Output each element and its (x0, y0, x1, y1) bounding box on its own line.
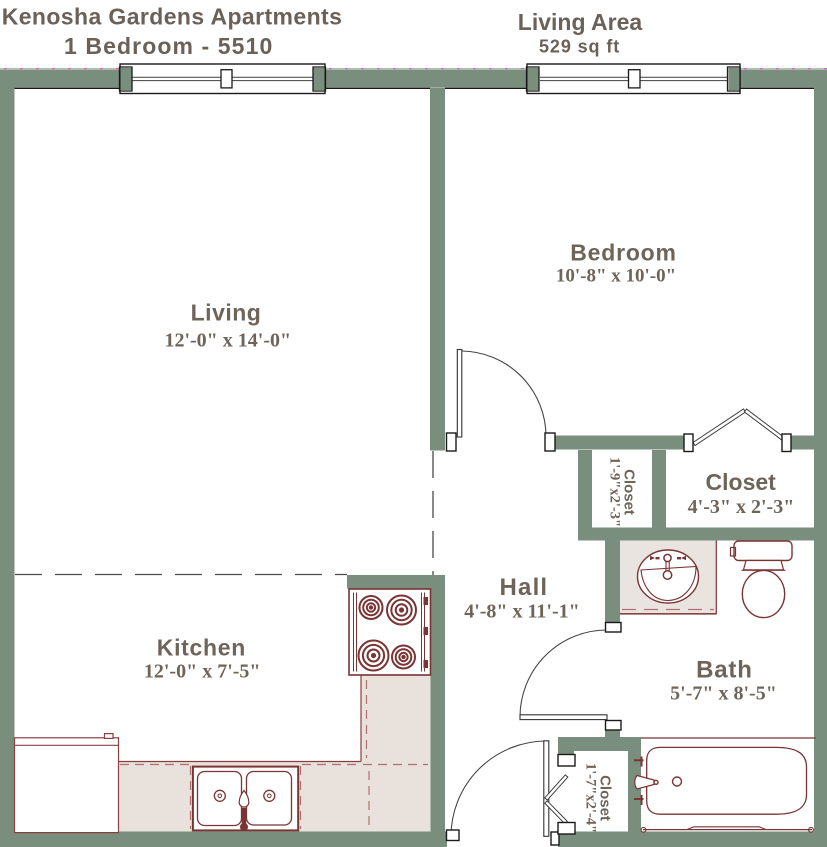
svg-text:5'-7" x 8'-5": 5'-7" x 8'-5" (670, 682, 777, 704)
svg-text:Living: Living (191, 300, 262, 326)
svg-text:4'-3" x 2'-3": 4'-3" x 2'-3" (688, 496, 795, 518)
svg-text:Closet: Closet (706, 469, 777, 495)
svg-text:1'-9"x2'-3": 1'-9"x2'-3" (607, 457, 623, 527)
svg-text:529 sq ft: 529 sq ft (539, 36, 620, 56)
svg-text:4'-8" x 11'-1": 4'-8" x 11'-1" (464, 601, 580, 623)
svg-text:10'-8" x 10'-0": 10'-8" x 10'-0" (556, 265, 676, 286)
svg-text:1'-7"x2'-4": 1'-7"x2'-4" (583, 763, 599, 833)
svg-text:Bedroom: Bedroom (570, 239, 677, 265)
svg-text:Kenosha Gardens Apartments: Kenosha Gardens Apartments (2, 4, 343, 30)
svg-text:Hall: Hall (499, 574, 548, 601)
svg-text:Kitchen: Kitchen (157, 634, 246, 660)
svg-text:Bath: Bath (696, 657, 753, 684)
svg-text:12'-0" x 7'-5": 12'-0" x 7'-5" (144, 660, 261, 682)
svg-text:12'-0" x 14'-0": 12'-0" x 14'-0" (164, 329, 291, 351)
svg-text:Living Area: Living Area (518, 9, 643, 35)
svg-text:1 Bedroom - 5510: 1 Bedroom - 5510 (64, 33, 273, 59)
